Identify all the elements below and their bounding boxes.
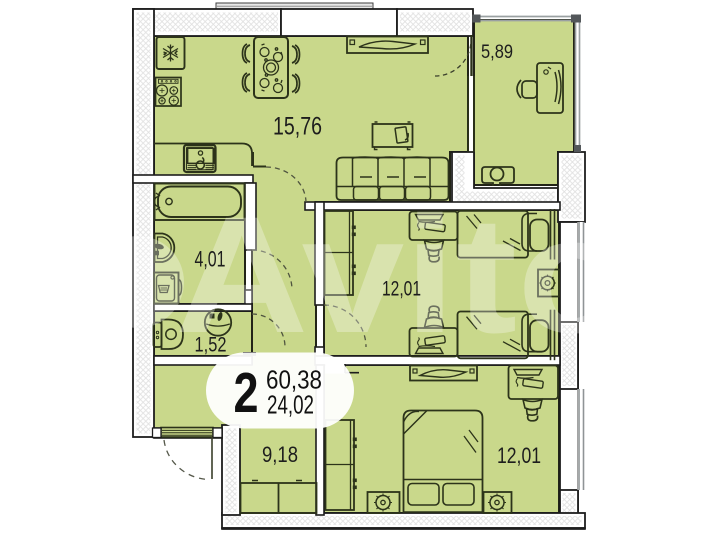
svg-text:5,89: 5,89 [481,42,513,63]
svg-text:12,01: 12,01 [382,278,421,301]
svg-text:Avito: Avito [175,183,630,368]
svg-text:60,38: 60,38 [266,367,322,395]
svg-text:12,01: 12,01 [497,443,541,468]
svg-text:15,76: 15,76 [273,113,322,141]
svg-text:9,18: 9,18 [262,442,298,467]
svg-text:1,52: 1,52 [195,334,227,357]
svg-text:24,02: 24,02 [267,392,314,420]
svg-text:4,01: 4,01 [195,247,226,272]
svg-text:2: 2 [234,361,259,425]
